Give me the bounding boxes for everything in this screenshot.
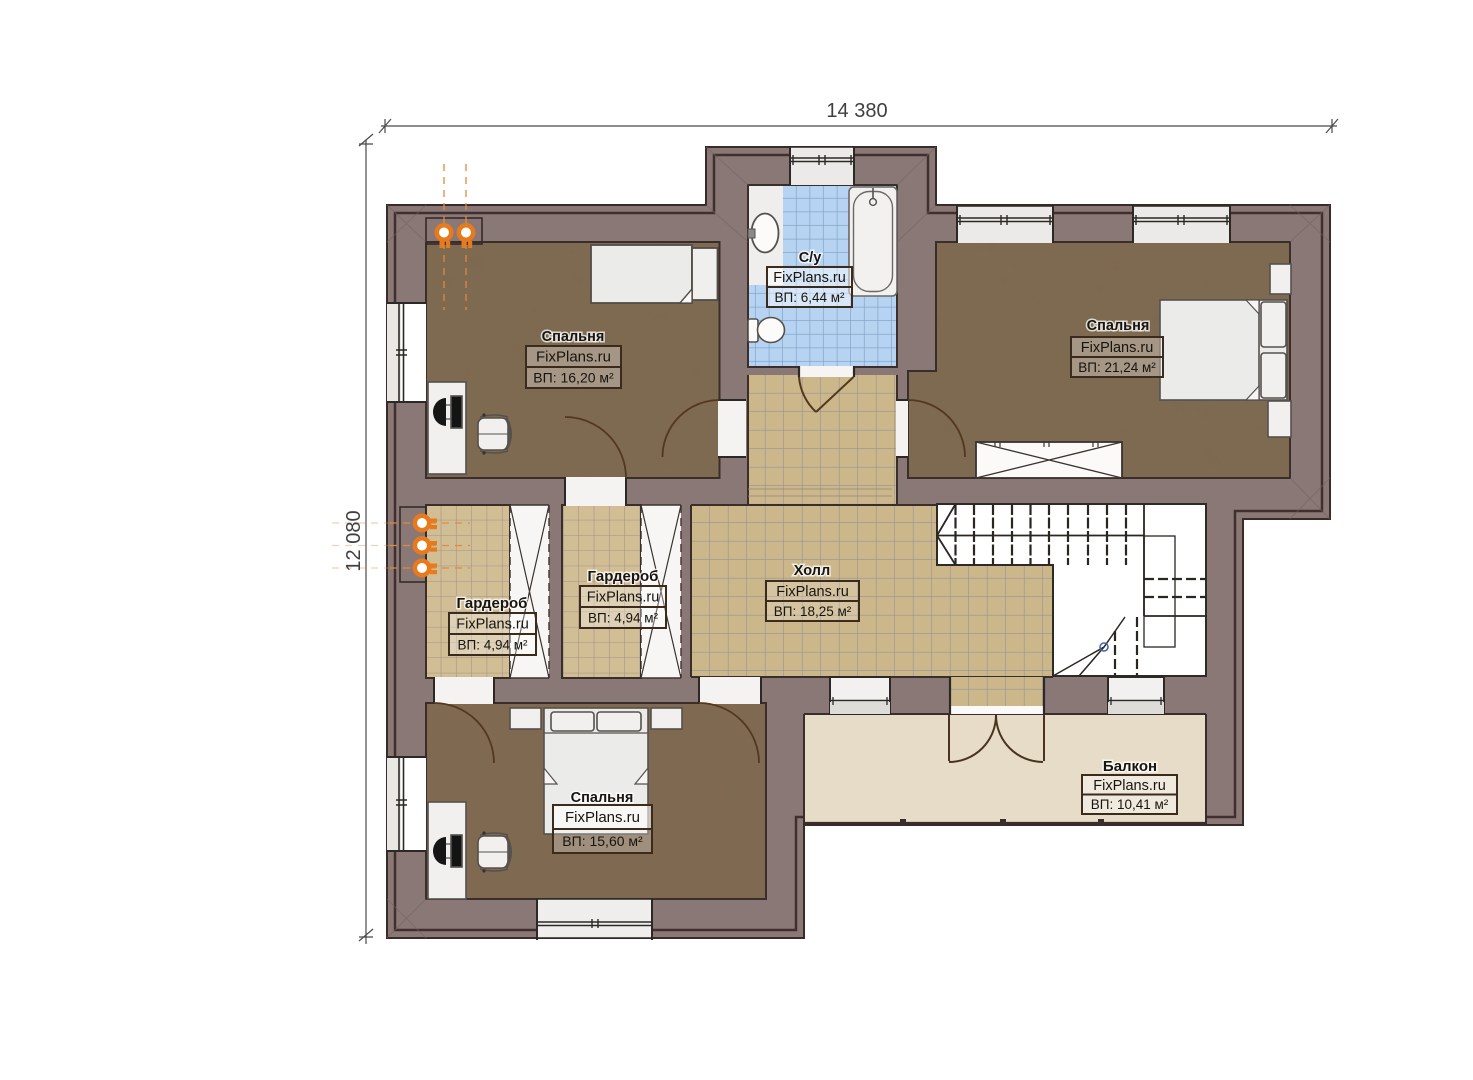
svg-text:Спальня: Спальня xyxy=(542,329,605,345)
svg-text:Балкон: Балкон xyxy=(1103,758,1157,775)
svg-text:FixPlans.ru: FixPlans.ru xyxy=(1081,340,1154,356)
svg-text:FixPlans.ru: FixPlans.ru xyxy=(565,809,640,826)
svg-text:Спальня: Спальня xyxy=(1087,318,1150,334)
svg-text:ВП: 18,25 м²: ВП: 18,25 м² xyxy=(774,604,852,619)
svg-text:ВП: 16,20 м²: ВП: 16,20 м² xyxy=(533,370,614,386)
svg-text:ВП: 21,24 м²: ВП: 21,24 м² xyxy=(1078,360,1156,375)
svg-text:Гардероб: Гардероб xyxy=(588,568,659,585)
svg-text:12 080: 12 080 xyxy=(343,510,365,571)
svg-text:Холл: Холл xyxy=(794,563,830,579)
svg-text:ВП: 6,44 м²: ВП: 6,44 м² xyxy=(774,290,845,305)
svg-text:FixPlans.ru: FixPlans.ru xyxy=(536,349,611,366)
svg-text:FixPlans.ru: FixPlans.ru xyxy=(587,590,660,606)
svg-text:14 380: 14 380 xyxy=(826,100,887,122)
svg-text:ВП: 4,94 м²: ВП: 4,94 м² xyxy=(588,611,659,626)
svg-text:FixPlans.ru: FixPlans.ru xyxy=(1093,778,1166,794)
svg-text:ВП: 15,60 м²: ВП: 15,60 м² xyxy=(562,833,643,849)
svg-text:ВП: 10,41 м²: ВП: 10,41 м² xyxy=(1091,797,1169,812)
svg-text:FixPlans.ru: FixPlans.ru xyxy=(456,617,529,633)
svg-text:FixPlans.ru: FixPlans.ru xyxy=(773,270,846,286)
svg-text:ВП: 4,94 м²: ВП: 4,94 м² xyxy=(457,638,528,653)
svg-text:FixPlans.ru: FixPlans.ru xyxy=(776,584,849,600)
svg-text:Спальня: Спальня xyxy=(571,790,634,806)
svg-text:С/у: С/у xyxy=(799,250,822,266)
svg-text:Гардероб: Гардероб xyxy=(457,595,528,612)
